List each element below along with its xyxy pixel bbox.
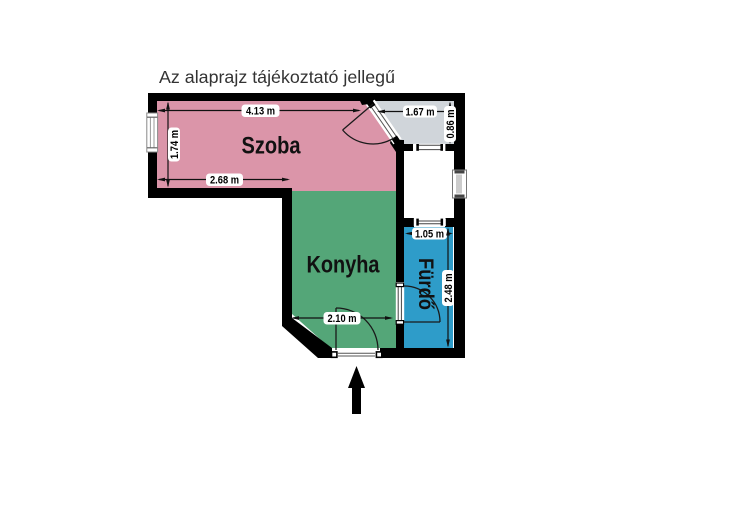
svg-text:1.74 m: 1.74 m bbox=[169, 130, 181, 159]
svg-text:Az alaprajz tájékoztató jelleg: Az alaprajz tájékoztató jellegű bbox=[159, 67, 395, 87]
svg-text:0.86 m: 0.86 m bbox=[445, 110, 457, 139]
svg-text:2.10 m: 2.10 m bbox=[328, 313, 357, 325]
svg-text:4.13 m: 4.13 m bbox=[246, 106, 275, 118]
svg-text:1.05 m: 1.05 m bbox=[415, 228, 444, 240]
svg-text:Konyha: Konyha bbox=[307, 252, 380, 279]
svg-text:2.68 m: 2.68 m bbox=[210, 175, 239, 187]
svg-text:Fürdő: Fürdő bbox=[414, 258, 437, 310]
svg-text:1.67 m: 1.67 m bbox=[406, 106, 435, 118]
svg-text:2.48 m: 2.48 m bbox=[443, 274, 455, 303]
svg-text:Szoba: Szoba bbox=[242, 133, 301, 160]
